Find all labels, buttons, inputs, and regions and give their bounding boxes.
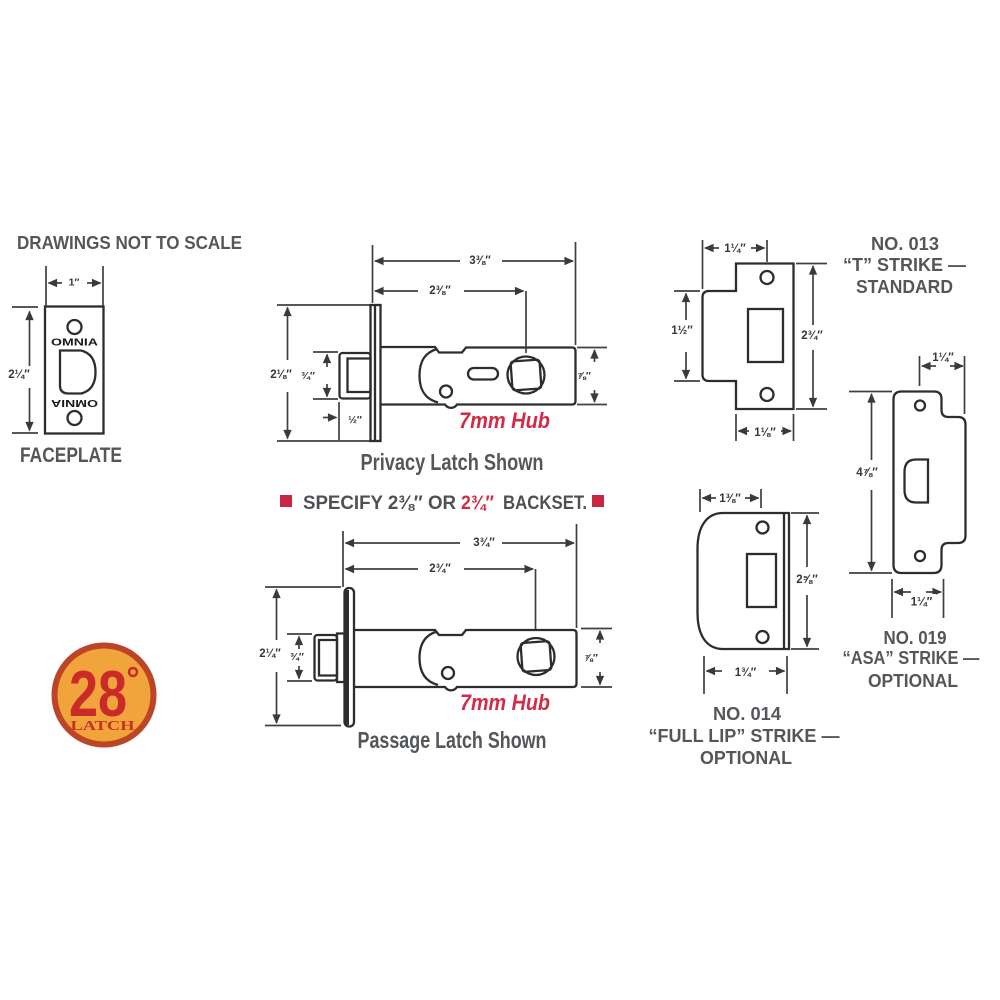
svg-text:2¾″: 2¾″ [461, 492, 494, 514]
svg-text:1¼″: 1¼″ [724, 243, 746, 255]
svg-text:1⅜″: 1⅜″ [719, 493, 741, 505]
svg-text:STANDARD: STANDARD [856, 277, 953, 297]
svg-text:1¼″: 1¼″ [932, 352, 954, 364]
svg-text:2¼″: 2¼″ [8, 369, 30, 381]
svg-text:¾″: ¾″ [290, 651, 304, 663]
svg-text:DRAWINGS NOT TO SCALE: DRAWINGS NOT TO SCALE [17, 233, 242, 253]
svg-text:1¼″: 1¼″ [911, 597, 933, 609]
svg-text:1¾″: 1¾″ [735, 667, 757, 679]
svg-text:OPTIONAL: OPTIONAL [868, 671, 958, 691]
svg-text:⅞″: ⅞″ [584, 652, 598, 664]
svg-text:NO. 013: NO. 013 [871, 234, 939, 254]
svg-text:3⅜″: 3⅜″ [469, 255, 491, 267]
svg-text:SPECIFY 2⅜″ OR: SPECIFY 2⅜″ OR [303, 492, 456, 514]
svg-text:4⅞″: 4⅞″ [856, 467, 878, 479]
svg-text:“FULL LIP” STRIKE —: “FULL LIP” STRIKE — [649, 726, 840, 746]
svg-text:OPTIONAL: OPTIONAL [700, 748, 792, 768]
svg-text:Privacy Latch Shown: Privacy Latch Shown [361, 449, 544, 475]
svg-text:1½″: 1½″ [671, 325, 693, 337]
svg-text:“T” STRIKE —: “T” STRIKE — [843, 255, 966, 275]
svg-text:2⅝″: 2⅝″ [796, 574, 818, 586]
svg-text:BACKSET.: BACKSET. [503, 492, 587, 514]
svg-text:½″: ½″ [348, 414, 362, 426]
svg-text:NO. 014: NO. 014 [713, 704, 781, 724]
svg-text:¾″: ¾″ [301, 370, 315, 382]
svg-text:2¼″: 2¼″ [259, 648, 281, 660]
svg-text:2⅛″: 2⅛″ [270, 369, 292, 381]
svg-text:1⅛″: 1⅛″ [754, 427, 776, 439]
svg-text:Passage Latch Shown: Passage Latch Shown [358, 727, 547, 753]
svg-text:3¾″: 3¾″ [473, 537, 495, 549]
svg-text:OMNIA: OMNIA [51, 397, 98, 408]
svg-text:7mm Hub: 7mm Hub [459, 408, 550, 433]
svg-text:FACEPLATE: FACEPLATE [20, 444, 122, 467]
svg-text:2⅜″: 2⅜″ [429, 285, 451, 297]
svg-text:“ASA” STRIKE —: “ASA” STRIKE — [843, 648, 980, 668]
svg-text:⅞″: ⅞″ [577, 370, 591, 382]
svg-text:OMNIA: OMNIA [51, 338, 98, 349]
svg-text:1″: 1″ [69, 277, 80, 289]
svg-text:7mm Hub: 7mm Hub [460, 690, 550, 715]
svg-text:NO. 019: NO. 019 [884, 628, 947, 648]
svg-text:2¾″: 2¾″ [429, 563, 451, 575]
svg-text:LATCH: LATCH [71, 719, 135, 734]
svg-text:2¾″: 2¾″ [801, 330, 823, 342]
